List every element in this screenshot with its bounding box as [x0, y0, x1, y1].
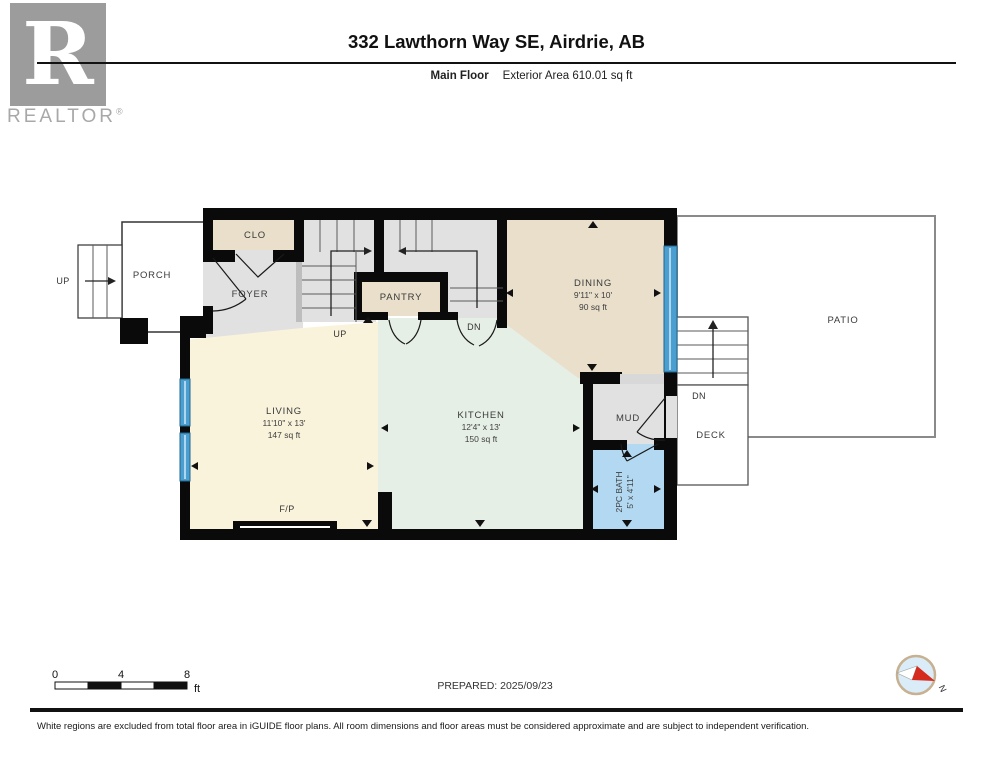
- mud-label: MUD: [616, 413, 640, 424]
- footer-divider: [30, 708, 963, 712]
- patio-label: PATIO: [827, 315, 858, 326]
- dining-area: 90 sq ft: [579, 302, 608, 312]
- porch-pillar: [120, 318, 148, 344]
- stairs-dn-label: DN: [467, 322, 481, 332]
- wall-closet-bottom-left: [203, 250, 235, 262]
- wall-pantry-bottom-right: [418, 312, 448, 320]
- scale-tick-4: 4: [118, 669, 124, 681]
- wall-landing-stub: [448, 312, 458, 320]
- deck-door-opening: [666, 396, 677, 438]
- dining-dims: 9'11" x 10': [574, 290, 613, 300]
- scale-unit: ft: [194, 683, 200, 695]
- deck-label: DECK: [696, 430, 726, 441]
- registered-mark: ®: [116, 107, 126, 117]
- wall-pantry-top: [354, 272, 448, 282]
- stairs-up-label: UP: [333, 329, 346, 339]
- room-mud: [588, 378, 668, 444]
- realtor-brand: REALTOR: [7, 106, 116, 127]
- scale-tick-0: 0: [52, 669, 58, 681]
- floor-plan-canvas: PORCH UP CLO FOYER UP PANTRY DN DINING 9…: [0, 0, 993, 768]
- porch-up-label: UP: [56, 276, 69, 286]
- realtor-logo-letter: R: [22, 12, 93, 98]
- kitchen-area: 150 sq ft: [465, 434, 498, 444]
- foyer-label: FOYER: [232, 289, 269, 300]
- dining-label: DINING: [574, 278, 612, 289]
- scale-tick-8: 8: [184, 669, 190, 681]
- wall-kitchen-right: [583, 372, 593, 540]
- scale-seg-2: [88, 682, 121, 689]
- wall-mud-bath-left: [583, 440, 627, 450]
- scale-seg-4: [154, 682, 187, 689]
- footer-disclaimer: White regions are excluded from total fl…: [37, 721, 973, 732]
- bath-label: 2PC BATH: [614, 472, 624, 513]
- wall-top: [203, 208, 677, 220]
- kitchen-label: KITCHEN: [457, 410, 504, 421]
- porch-label: PORCH: [133, 270, 171, 281]
- living-area: 147 sq ft: [268, 430, 301, 440]
- bath-dims: 5' x 4'11": [625, 475, 635, 509]
- wall-living-kitchen-stub: [378, 492, 392, 534]
- pantry-label: PANTRY: [380, 292, 422, 303]
- scale-bar: 0 4 8 ft: [52, 669, 200, 695]
- fireplace-inner-line: [240, 526, 330, 528]
- deck-dn-label: DN: [692, 391, 706, 401]
- realtor-logo-text: REALTOR®: [7, 106, 126, 128]
- compass: N: [897, 656, 949, 694]
- scale-seg-3: [121, 682, 154, 689]
- compass-north-label: N: [937, 683, 949, 693]
- dining-mud-opening: [620, 374, 664, 384]
- prepared-date: PREPARED: 2025/09/23: [437, 680, 553, 692]
- realtor-logo-icon: R: [10, 3, 106, 106]
- header-divider: [37, 62, 956, 64]
- fireplace-label: F/P: [279, 504, 294, 514]
- closet-label: CLO: [244, 230, 266, 241]
- scale-seg-1: [55, 682, 88, 689]
- living-label: LIVING: [266, 406, 302, 417]
- floor-plan-page: R REALTOR® 332 Lawthorn Way SE, Airdrie,…: [0, 0, 993, 768]
- wall-pantry-bottom-left: [354, 312, 388, 320]
- wall-stairs-divider: [374, 208, 384, 282]
- foyer-stairs-divider: [296, 258, 302, 322]
- living-dims: 11'10" x 13': [263, 418, 306, 428]
- kitchen-dims: 12'4" x 13': [462, 422, 501, 432]
- wall-dining-left: [497, 208, 507, 328]
